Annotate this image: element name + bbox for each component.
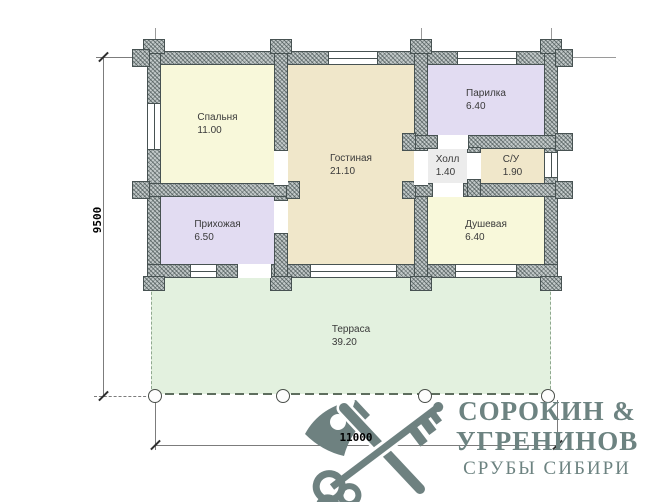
room-bedroom: Спальня 11.00	[160, 64, 275, 184]
window-entry-south	[190, 264, 217, 278]
room-shower: Душевая 6.40	[427, 196, 545, 265]
log-end	[411, 40, 431, 53]
log-end	[144, 277, 164, 290]
room-steam-label: Парилка 6.40	[466, 87, 506, 113]
room-entry-hall: Прихожая 6.50	[160, 196, 275, 265]
door-entry-terrace	[237, 264, 272, 278]
room-area: 6.40	[465, 231, 507, 244]
log-end	[403, 134, 415, 150]
door-hall-wc	[467, 152, 481, 180]
room-name: Душевая	[465, 218, 507, 231]
room-name: Парилка	[466, 87, 506, 100]
room-area: 6.40	[466, 100, 506, 113]
window-wc-east	[544, 152, 558, 178]
room-hall: Холл 1.40	[427, 148, 468, 184]
room-name: Холл	[436, 153, 460, 166]
room-name: Терраса	[332, 323, 370, 336]
log-end	[556, 182, 572, 198]
window-living-south	[310, 264, 397, 278]
room-area: 21.10	[330, 165, 372, 178]
log-end	[133, 182, 149, 198]
room-area: 39.20	[332, 336, 370, 349]
room-entry-hall-label: Прихожая 6.50	[194, 218, 240, 244]
room-hall-label: Холл 1.40	[436, 153, 460, 179]
logo-line-2: УГРЕНИНОВ	[436, 426, 658, 456]
door-entry-living	[274, 200, 288, 234]
room-living-label: Гостиная 21.10	[330, 152, 372, 178]
company-logo: СОРОКИН & УГРЕНИНОВ СРУБЫ СИБИРИ	[436, 397, 658, 481]
log-end	[556, 134, 572, 150]
room-area: 6.50	[194, 231, 240, 244]
floor-plan: Спальня 11.00 Прихожая 6.50 Гостиная 21.…	[0, 0, 661, 502]
door-living-hall	[414, 150, 428, 186]
room-name: С/У	[503, 153, 522, 166]
room-name: Спальня	[197, 111, 237, 124]
wall-exterior-left	[148, 52, 160, 277]
room-shower-label: Душевая 6.40	[465, 218, 507, 244]
terrace-post	[148, 389, 162, 403]
room-area: 1.90	[503, 166, 522, 179]
dimension-width-label: 11000	[330, 431, 382, 444]
window-living-north	[328, 51, 378, 65]
room-name: Гостиная	[330, 152, 372, 165]
room-name: Прихожая	[194, 218, 240, 231]
room-wc: С/У 1.90	[480, 148, 545, 184]
logo-line-3: СРУБЫ СИБИРИ	[436, 456, 658, 481]
room-area: 1.40	[436, 166, 460, 179]
log-end	[541, 277, 561, 290]
log-end	[287, 182, 299, 198]
room-steam: Парилка 6.40	[427, 64, 545, 136]
room-terrace: Терраса 39.20	[151, 277, 551, 394]
terrace-post	[276, 389, 290, 403]
door-bedroom-living	[274, 150, 288, 186]
window-bedroom-west	[147, 103, 161, 150]
log-end	[411, 277, 431, 290]
dimension-height-label: 9500	[91, 200, 105, 240]
room-wc-label: С/У 1.90	[503, 153, 522, 179]
log-end	[271, 40, 291, 53]
door-hall-steam	[437, 135, 469, 149]
room-area: 11.00	[197, 124, 237, 137]
room-bedroom-label: Спальня 11.00	[197, 111, 237, 137]
door-hall-shower	[432, 183, 464, 197]
log-end	[271, 277, 291, 290]
room-terrace-label: Терраса 39.20	[332, 323, 370, 349]
log-end	[133, 50, 149, 66]
wall-interior-hA	[148, 184, 287, 196]
log-end	[556, 50, 572, 66]
window-steam-north	[457, 51, 517, 65]
window-shower-south	[455, 264, 517, 278]
room-living: Гостиная 21.10	[287, 64, 415, 265]
logo-line-1: СОРОКИН &	[436, 397, 658, 426]
